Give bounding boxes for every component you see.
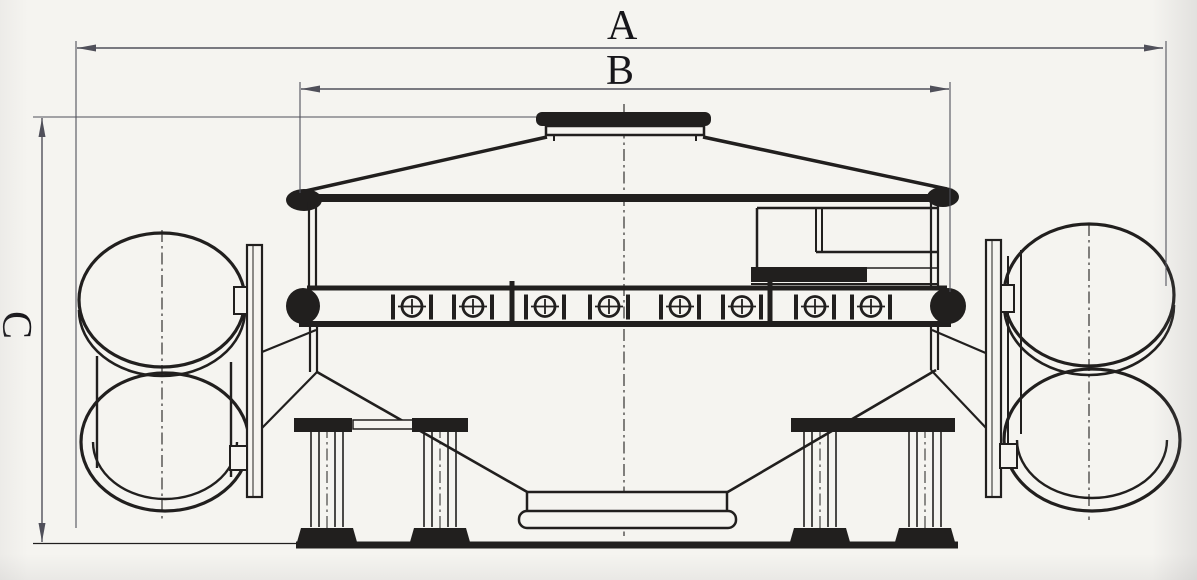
dimension-b-label: B: [606, 50, 634, 92]
left-outlet-spout: [262, 330, 317, 428]
dimension-c-label: C: [0, 311, 37, 339]
clamp-band: [286, 281, 966, 324]
left-mounting-plate: [247, 245, 262, 497]
right-mounting-plate: [986, 240, 1001, 497]
discharge-hopper: [317, 370, 936, 528]
dimension-a-label: A: [607, 5, 637, 47]
lid-cone: [286, 137, 959, 211]
ground-line: [33, 544, 958, 546]
right-upper-clamp: [1001, 285, 1014, 312]
engineering-drawing-sheet: A B C: [0, 0, 1197, 580]
right-lower-clamp: [1000, 444, 1017, 468]
left-collection-drum: [79, 230, 262, 522]
right-collection-drum: [986, 224, 1180, 520]
machine-line-drawing: [0, 0, 1197, 580]
side-control-box: [751, 208, 938, 284]
left-upper-clamp: [234, 287, 247, 314]
right-outlet-spout: [931, 330, 988, 430]
left-lower-clamp: [230, 446, 247, 470]
